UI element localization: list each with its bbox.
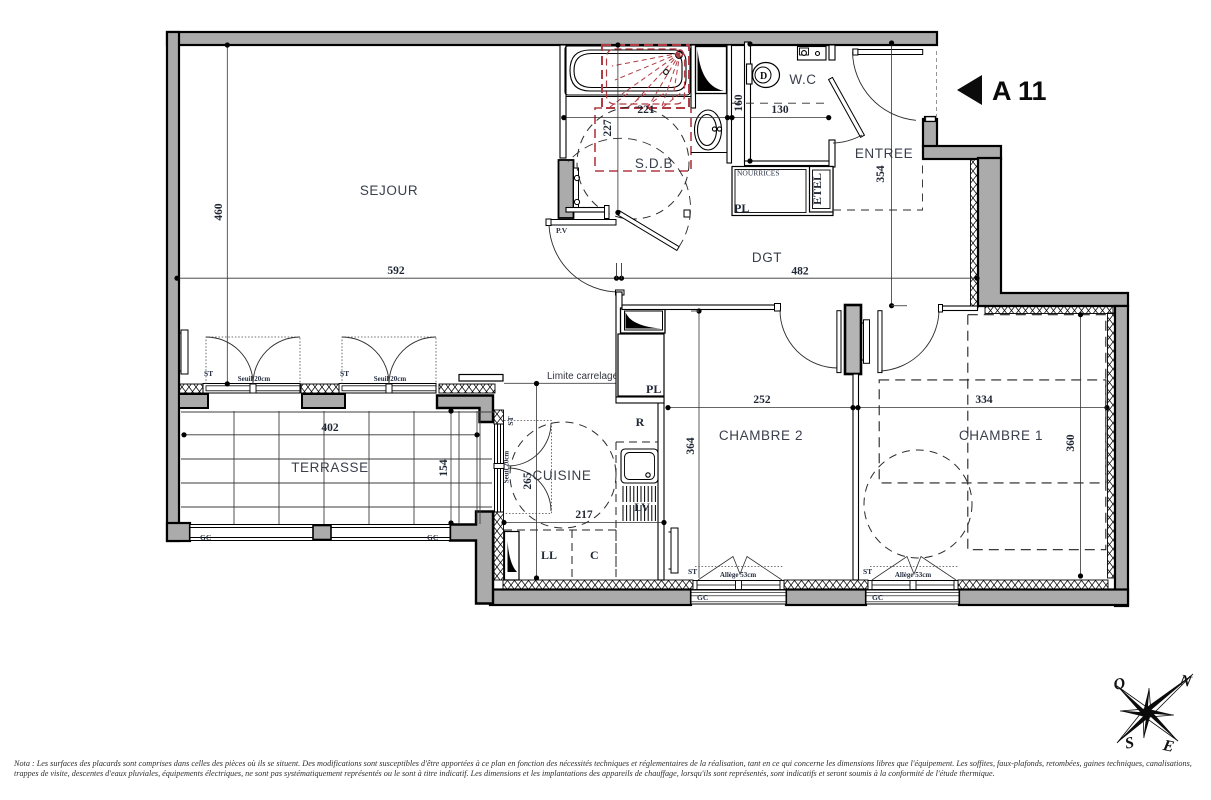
svg-text:Allège 53cm: Allège 53cm: [895, 571, 932, 579]
svg-text:PL: PL: [734, 201, 749, 215]
svg-text:PL: PL: [646, 382, 661, 396]
svg-text:CHAMBRE 2: CHAMBRE 2: [719, 428, 803, 443]
svg-text:Seuil 20cm: Seuil 20cm: [374, 375, 407, 383]
svg-text:P.V: P.V: [556, 226, 568, 235]
svg-text:C: C: [590, 548, 599, 562]
svg-text:A 11: A 11: [992, 76, 1047, 106]
svg-text:265: 265: [522, 472, 534, 490]
svg-text:160: 160: [733, 94, 745, 112]
svg-text:S.D.B: S.D.B: [635, 156, 673, 171]
svg-text:364: 364: [685, 437, 697, 455]
svg-text:SEJOUR: SEJOUR: [360, 183, 418, 198]
svg-text:334: 334: [975, 394, 993, 406]
svg-text:ST: ST: [688, 567, 697, 576]
svg-text:GC: GC: [872, 593, 883, 602]
svg-text:402: 402: [321, 422, 339, 434]
svg-text:130: 130: [771, 104, 789, 116]
svg-text:LL: LL: [541, 548, 557, 562]
svg-text:GC: GC: [427, 533, 438, 542]
svg-text:W.C: W.C: [789, 72, 816, 87]
svg-text:354: 354: [875, 165, 887, 183]
svg-text:227: 227: [602, 119, 614, 137]
svg-text:592: 592: [387, 265, 405, 277]
svg-text:ENTREE: ENTREE: [855, 146, 913, 161]
svg-text:GC: GC: [200, 533, 211, 542]
svg-text:CHAMBRE 1: CHAMBRE 1: [959, 428, 1043, 443]
svg-text:Seuil 20cm: Seuil 20cm: [503, 451, 511, 484]
svg-text:252: 252: [753, 394, 771, 406]
svg-text:ST: ST: [863, 567, 872, 576]
svg-text:Seuil 20cm: Seuil 20cm: [238, 375, 271, 383]
svg-text:CUISINE: CUISINE: [533, 468, 592, 483]
svg-text:ETEL: ETEL: [810, 173, 824, 205]
svg-text:Limite carrelage: Limite carrelage: [547, 371, 619, 382]
svg-text:ST: ST: [506, 416, 515, 425]
svg-text:trappes de visite, descentes d: trappes de visite, descentes d'eaux pluv…: [14, 769, 995, 778]
svg-text:LV: LV: [634, 500, 650, 514]
svg-text:GC: GC: [697, 593, 708, 602]
svg-text:482: 482: [791, 266, 809, 278]
svg-text:ST: ST: [204, 369, 213, 378]
svg-text:154: 154: [438, 459, 450, 477]
svg-text:DGT: DGT: [752, 250, 782, 265]
svg-text:217: 217: [575, 509, 593, 521]
svg-text:D: D: [760, 71, 767, 82]
svg-text:Allège 53cm: Allège 53cm: [720, 571, 757, 579]
svg-text:TERRASSE: TERRASSE: [291, 460, 369, 475]
svg-text:Nota : Les surfaces des placar: Nota : Les surfaces des placards sont co…: [13, 759, 1192, 768]
svg-text:221: 221: [637, 104, 655, 116]
svg-text:ST: ST: [340, 369, 349, 378]
svg-text:R: R: [636, 415, 645, 429]
svg-text:460: 460: [213, 203, 225, 221]
svg-text:NOURRICES: NOURRICES: [737, 169, 780, 178]
svg-text:360: 360: [1065, 434, 1077, 452]
